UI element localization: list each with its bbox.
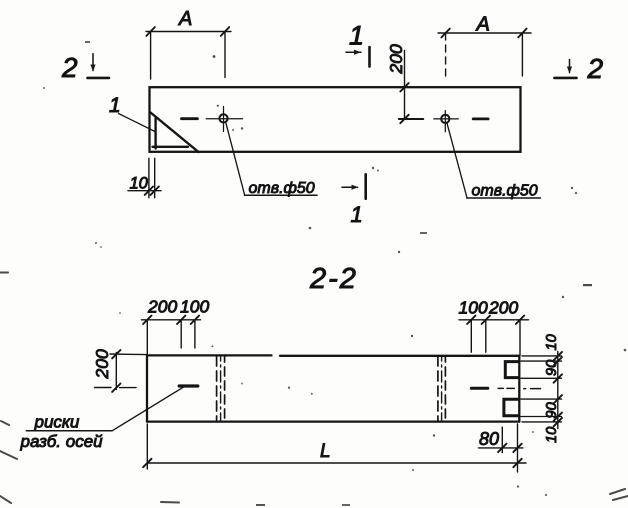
- svg-text:отв.ф50: отв.ф50: [249, 180, 315, 197]
- svg-text:1: 1: [351, 202, 363, 227]
- svg-text:80: 80: [479, 429, 499, 449]
- svg-text:отв.ф50: отв.ф50: [472, 183, 538, 200]
- svg-text:1: 1: [349, 21, 364, 51]
- svg-text:10: 10: [544, 427, 560, 443]
- svg-text:100: 100: [180, 297, 209, 317]
- svg-text:2: 2: [587, 53, 604, 84]
- svg-text:2: 2: [61, 52, 78, 83]
- svg-text:10: 10: [130, 175, 149, 193]
- svg-text:200: 200: [92, 349, 112, 379]
- svg-text:A: A: [476, 14, 490, 36]
- svg-text:разб. осей: разб. осей: [20, 432, 104, 451]
- svg-text:200: 200: [147, 297, 177, 317]
- svg-text:90: 90: [544, 360, 560, 376]
- svg-text:90: 90: [544, 402, 560, 418]
- svg-text:200: 200: [488, 298, 518, 318]
- svg-text:риски: риски: [34, 413, 80, 432]
- svg-text:2-2: 2-2: [309, 263, 358, 295]
- svg-text:A: A: [178, 8, 192, 30]
- svg-text:L: L: [320, 441, 331, 462]
- svg-text:1: 1: [109, 94, 121, 117]
- svg-text:100: 100: [459, 298, 488, 318]
- svg-text:10: 10: [544, 334, 560, 350]
- svg-text:200: 200: [386, 44, 406, 74]
